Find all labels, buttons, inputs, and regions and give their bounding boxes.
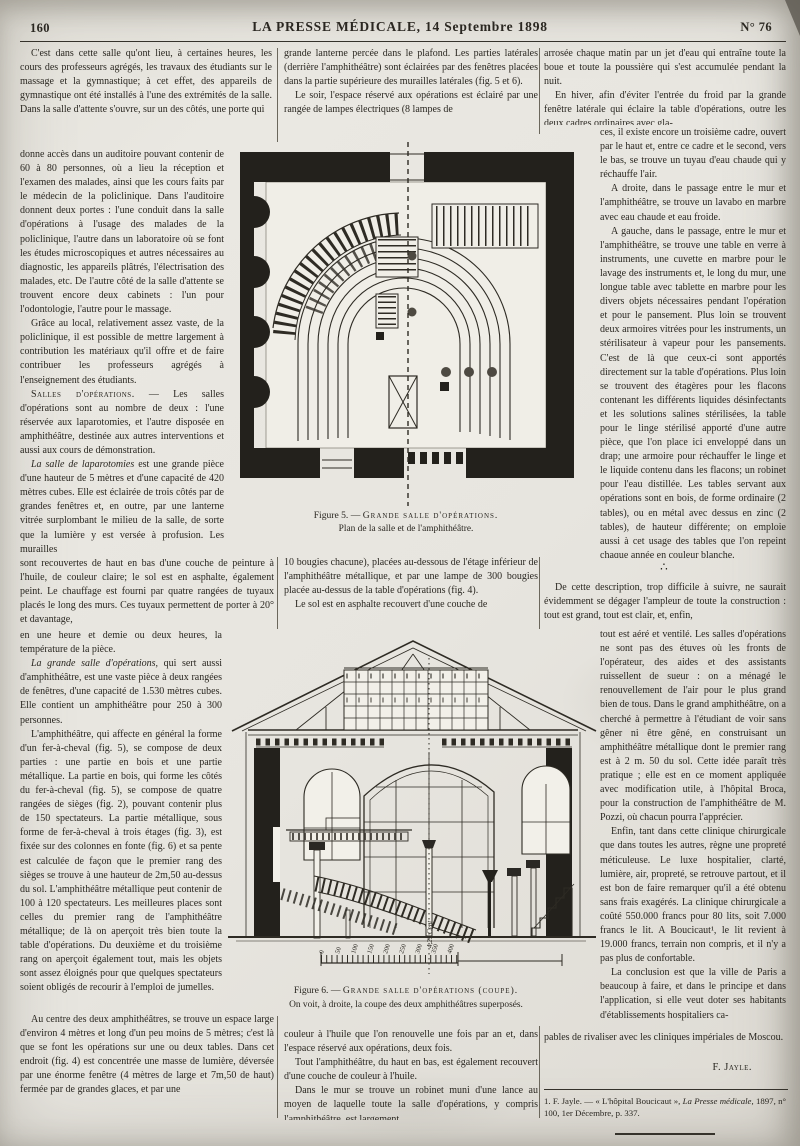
- article-text-block: en une heure et demie ou deux heures, la…: [20, 629, 222, 1013]
- article-paragraph: en une heure et demie ou deux heures, la…: [20, 629, 222, 657]
- article-text-block: pables de rivaliser avec les cliniques i…: [544, 1031, 786, 1061]
- svg-text:150: 150: [366, 943, 376, 954]
- figure6-subcaption: On voit, à droite, la coupe des deux amp…: [236, 999, 576, 1011]
- svg-text:0: 0: [318, 949, 326, 954]
- article-paragraph: La salle de laparotomies est une grande …: [20, 458, 224, 556]
- plan-operating-table: [389, 376, 417, 428]
- article-paragraph: Tout l'amphithéâtre, du haut en bas, est…: [284, 1056, 538, 1084]
- article-text-block: C'est dans cette salle qu'ont lieu, à ce…: [20, 47, 272, 147]
- figure5-caption: Figure 5. — Grande salle d'opérations.: [246, 509, 566, 522]
- figure6-scale-bar: [321, 952, 562, 966]
- article-paragraph: grande lanterne percée dans le plafond. …: [284, 47, 538, 89]
- svg-text:250: 250: [398, 943, 408, 954]
- column-divider: [277, 1016, 278, 1118]
- article-paragraph: Grâce au local, relativement assez vaste…: [20, 317, 224, 387]
- header-rule: [20, 41, 786, 42]
- article-paragraph: Au centre des deux amphithéâtres, se tro…: [20, 1013, 274, 1098]
- svg-text:100: 100: [350, 943, 360, 954]
- article-text-block: couleur à l'huile que l'on renouvelle un…: [284, 1028, 538, 1120]
- article-paragraph: La grande salle d'opérations, qui sert a…: [20, 657, 222, 727]
- article-paragraph: Le sol est en asphalte recouvert d'une c…: [284, 598, 538, 612]
- article-paragraph: 10 bougies chacune), placées au-dessous …: [284, 556, 538, 598]
- svg-text:50: 50: [334, 946, 343, 954]
- article-paragraph: Enfin, tant dans cette clinique chirurgi…: [600, 825, 786, 966]
- article-paragraph: De cette description, trop difficile à s…: [544, 581, 786, 623]
- article-text-block: sont recouvertes de haut en bas d'une co…: [20, 557, 274, 629]
- article-paragraph: A gauche, dans le passage, entre le mur …: [600, 225, 786, 558]
- figure6-scale-label: 4,25 Cent: [426, 920, 434, 948]
- article-paragraph: couleur à l'huile que l'on renouvelle un…: [284, 1028, 538, 1056]
- article-text-block: grande lanterne percée dans le plafond. …: [284, 47, 538, 137]
- article-paragraph: Salles d'opérations. — Les salles d'opér…: [20, 388, 224, 458]
- column-divider: [539, 48, 540, 134]
- italic-lead: La grande salle d'opérations,: [31, 658, 158, 669]
- article-text-block: De cette description, trop difficile à s…: [544, 581, 786, 627]
- footnote-rule: [544, 1089, 788, 1090]
- svg-text:200: 200: [382, 943, 392, 954]
- figure6-caption: Figure 6. — Grande salle d'opérations (c…: [236, 984, 576, 997]
- figure5-subcaption: Plan de la salle et de l'amphithéâtre.: [246, 523, 566, 535]
- article-paragraph: sont recouvertes de haut en bas d'une co…: [20, 557, 274, 627]
- italic-lead: La salle de laparotomies: [31, 459, 134, 470]
- article-paragraph: A droite, dans le passage entre le mur e…: [600, 182, 786, 224]
- issue-number: N° 76: [740, 20, 772, 35]
- column-divider: [539, 557, 540, 629]
- column-divider: [277, 557, 278, 629]
- article-text-block: 10 bougies chacune), placées au-dessous …: [284, 556, 538, 630]
- article-paragraph: ces, il existe encore un troisième cadre…: [600, 126, 786, 182]
- svg-text:400: 400: [446, 943, 456, 954]
- article-paragraph: donne accès dans un auditoire pouvant co…: [20, 148, 224, 317]
- figure6-section: 0 50 100 150 200 250 300 350 400 4,25 Ce…: [226, 632, 598, 978]
- plan-straight-rows: [432, 204, 538, 248]
- article-text-block: ces, il existe encore un troisième cadre…: [600, 126, 786, 558]
- section-heading: Salles d'opérations.: [31, 389, 135, 400]
- footnote: 1. F. Jayle. — « L'hôpital Boucicaut », …: [544, 1096, 786, 1119]
- article-paragraph: En hiver, afin d'éviter l'entrée du froi…: [544, 89, 786, 125]
- end-rule: [615, 1133, 715, 1135]
- article-text-block: donne accès dans un auditoire pouvant co…: [20, 148, 224, 556]
- journal-title: LA PRESSE MÉDICALE, 14 Septembre 1898: [0, 19, 800, 35]
- article-text-block: Au centre des deux amphithéâtres, se tro…: [20, 1013, 274, 1115]
- article-paragraph: arrosée chaque matin par un jet d'eau qu…: [544, 47, 786, 89]
- article-paragraph: La conclusion est que la ville de Paris …: [600, 966, 786, 1022]
- section-window-right: [522, 766, 570, 854]
- article-paragraph: Dans le mur se trouve un robinet muni d'…: [284, 1084, 538, 1120]
- article-text-block: arrosée chaque matin par un jet d'eau qu…: [544, 47, 786, 125]
- journal-page: 160 LA PRESSE MÉDICALE, 14 Septembre 189…: [0, 0, 800, 1146]
- article-paragraph: L'amphithéâtre, qui affecte en général l…: [20, 728, 222, 996]
- column-divider: [539, 1026, 540, 1118]
- section-amphitheatre-ramp: [282, 876, 476, 938]
- svg-text:300: 300: [414, 943, 424, 954]
- article-paragraph: C'est dans cette salle qu'ont lieu, à ce…: [20, 47, 272, 117]
- author-signature: F. Jayle.: [544, 1062, 786, 1073]
- article-paragraph: tout est aéré et ventilé. Les salles d'o…: [600, 628, 786, 825]
- section-lantern-grid: [344, 670, 488, 730]
- column-divider: [277, 48, 278, 142]
- article-paragraph: pables de rivaliser avec les cliniques i…: [544, 1031, 786, 1045]
- section-separator: ∴: [544, 560, 786, 575]
- figure5-plan: [226, 142, 586, 506]
- article-text-block: tout est aéré et ventilé. Les salles d'o…: [600, 628, 786, 1030]
- article-paragraph: Le soir, l'espace réservé aux opérations…: [284, 89, 538, 117]
